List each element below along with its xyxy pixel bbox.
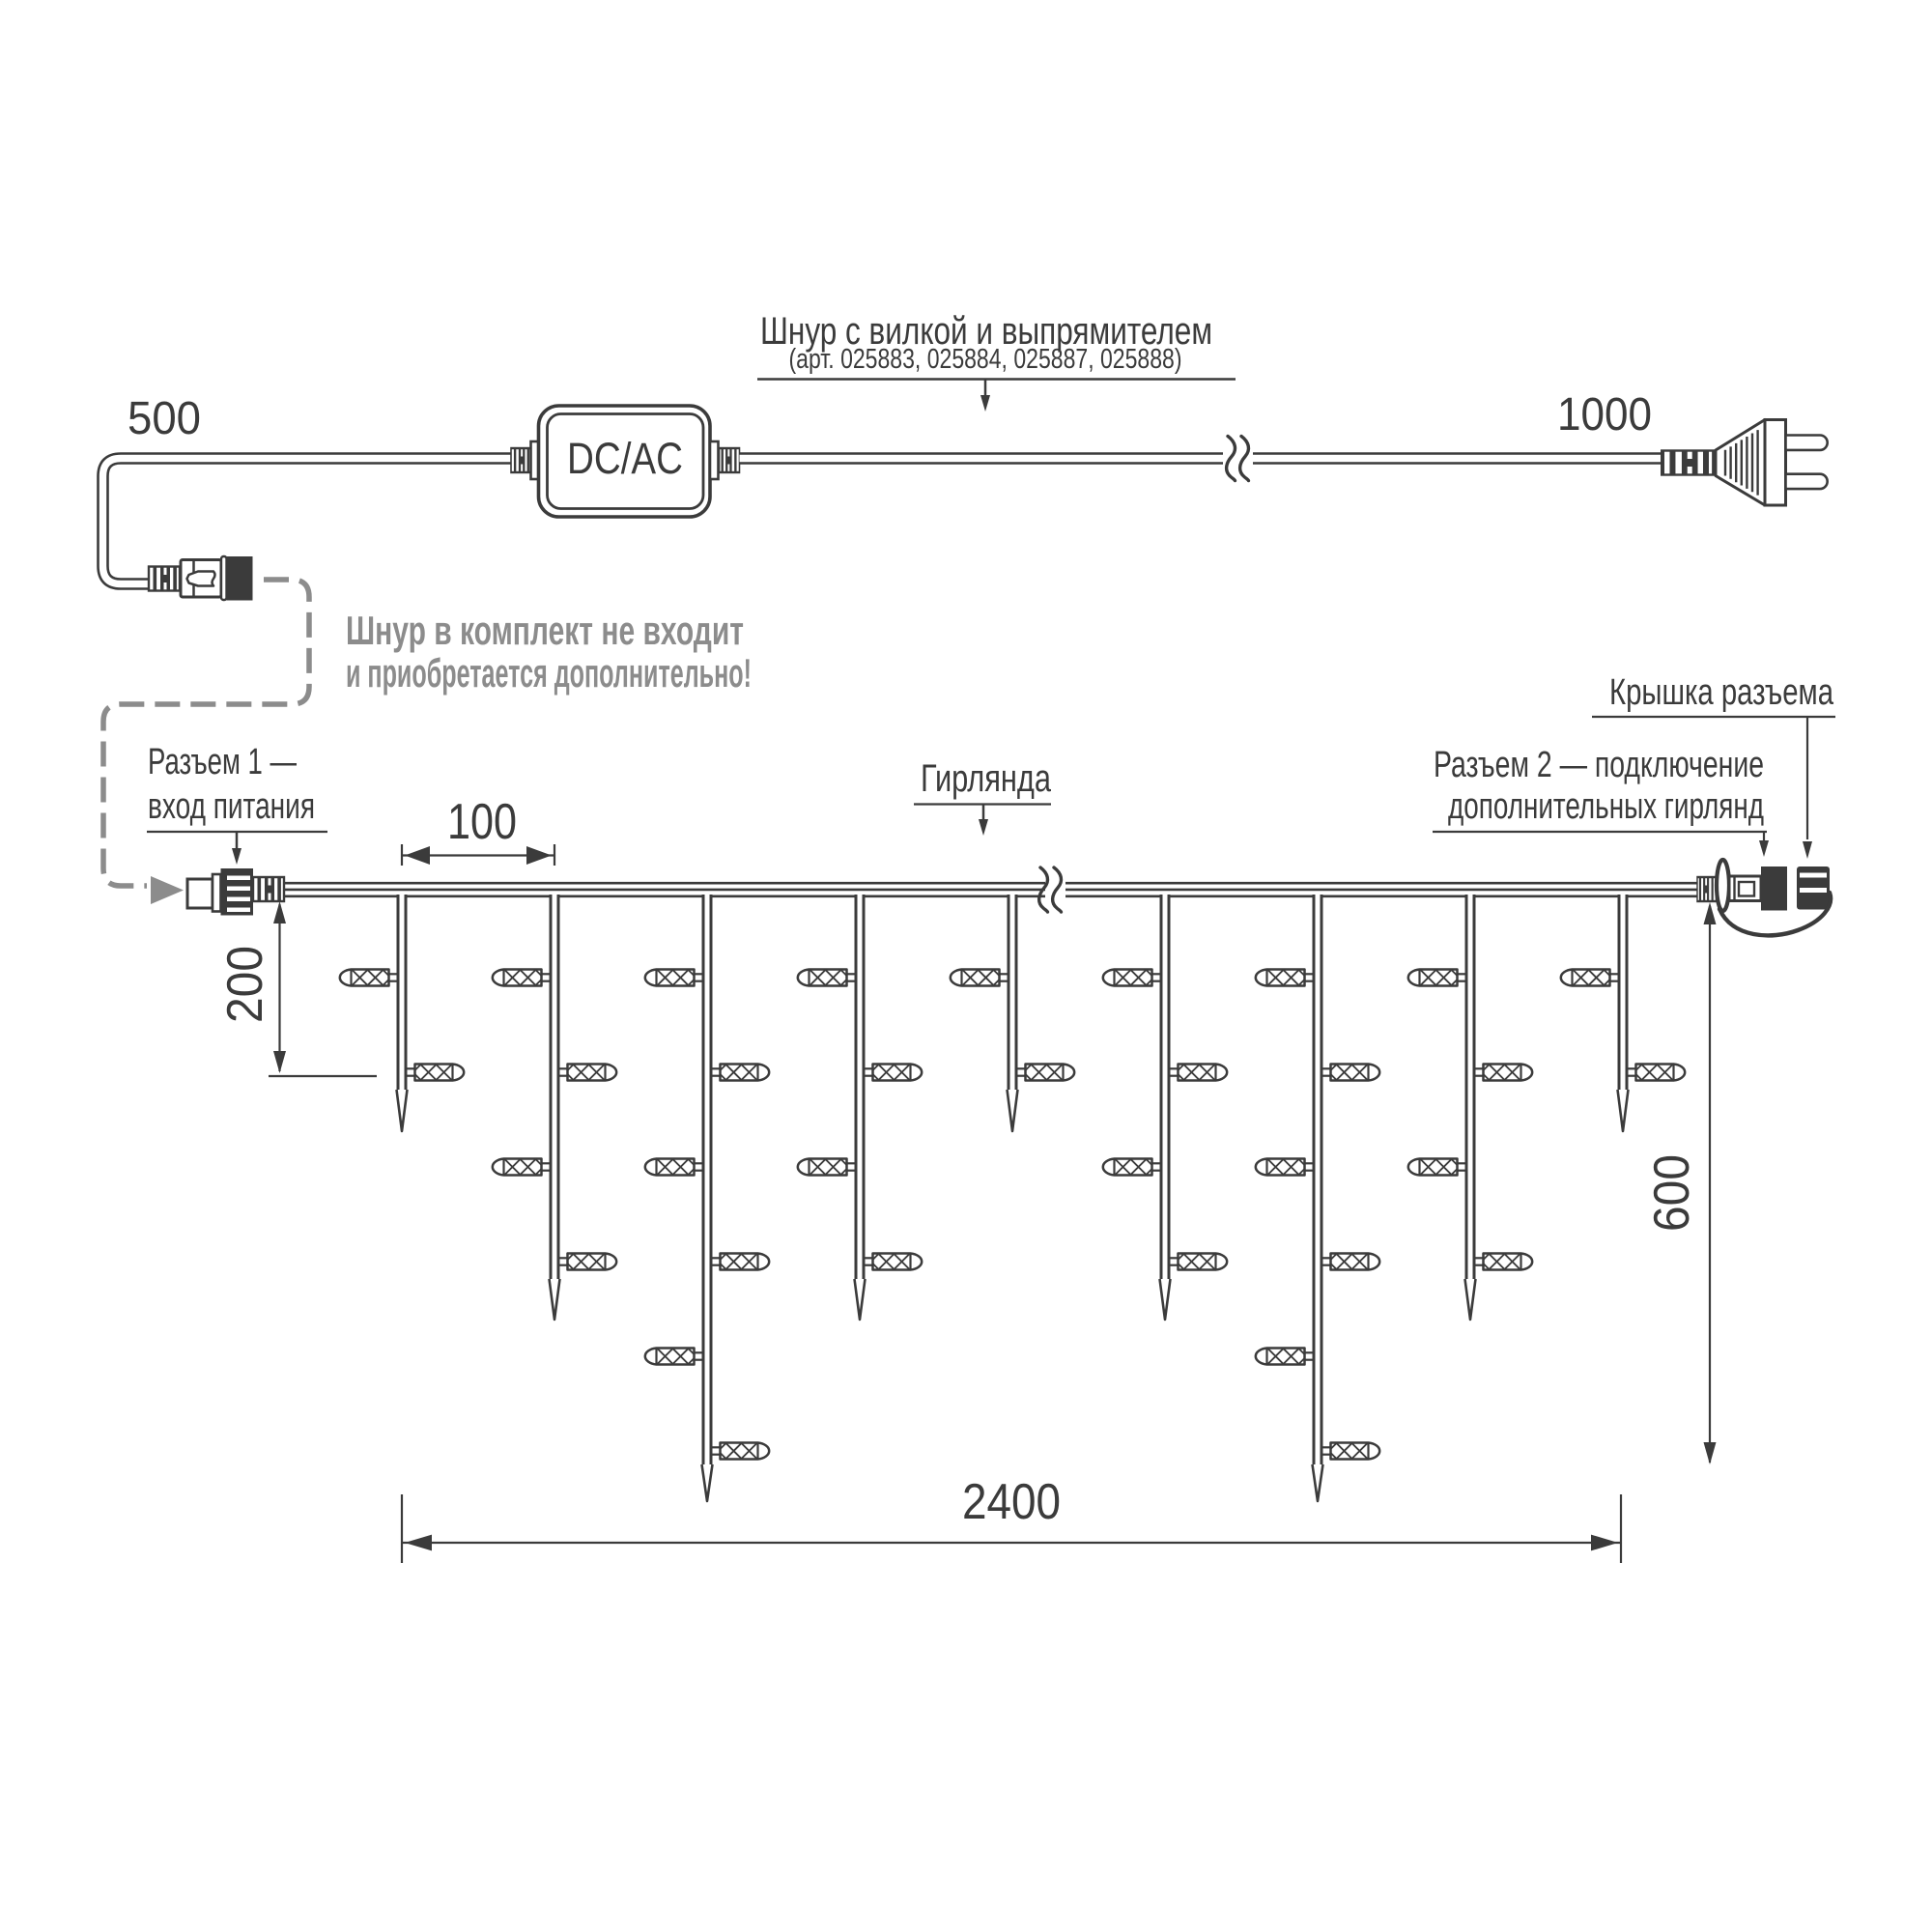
svg-text:вход питания: вход питания <box>148 786 315 827</box>
svg-text:Гирлянда: Гирлянда <box>921 757 1052 800</box>
svg-text:Шнур в комплект не входит: Шнур в комплект не входит <box>346 608 744 653</box>
svg-text:Разъем 1 —: Разъем 1 — <box>148 742 297 782</box>
svg-text:(арт. 025883, 025884, 025887,: (арт. 025883, 025884, 025887, 025888) <box>789 344 1182 375</box>
svg-text:500: 500 <box>128 393 201 444</box>
svg-text:2400: 2400 <box>962 1474 1061 1530</box>
svg-text:1000: 1000 <box>1557 389 1652 440</box>
svg-text:100: 100 <box>447 794 517 850</box>
svg-text:дополнительных гирлянд: дополнительных гирлянд <box>1448 786 1764 827</box>
svg-text:Крышка разъема: Крышка разъема <box>1609 672 1834 713</box>
svg-text:600: 600 <box>1644 1154 1700 1232</box>
svg-text:и приобретается дополнительно!: и приобретается дополнительно! <box>346 650 752 696</box>
svg-text:Разъем 2 — подключение: Разъем 2 — подключение <box>1434 745 1764 785</box>
svg-text:200: 200 <box>217 946 273 1023</box>
svg-text:DC/AC: DC/AC <box>567 434 683 483</box>
